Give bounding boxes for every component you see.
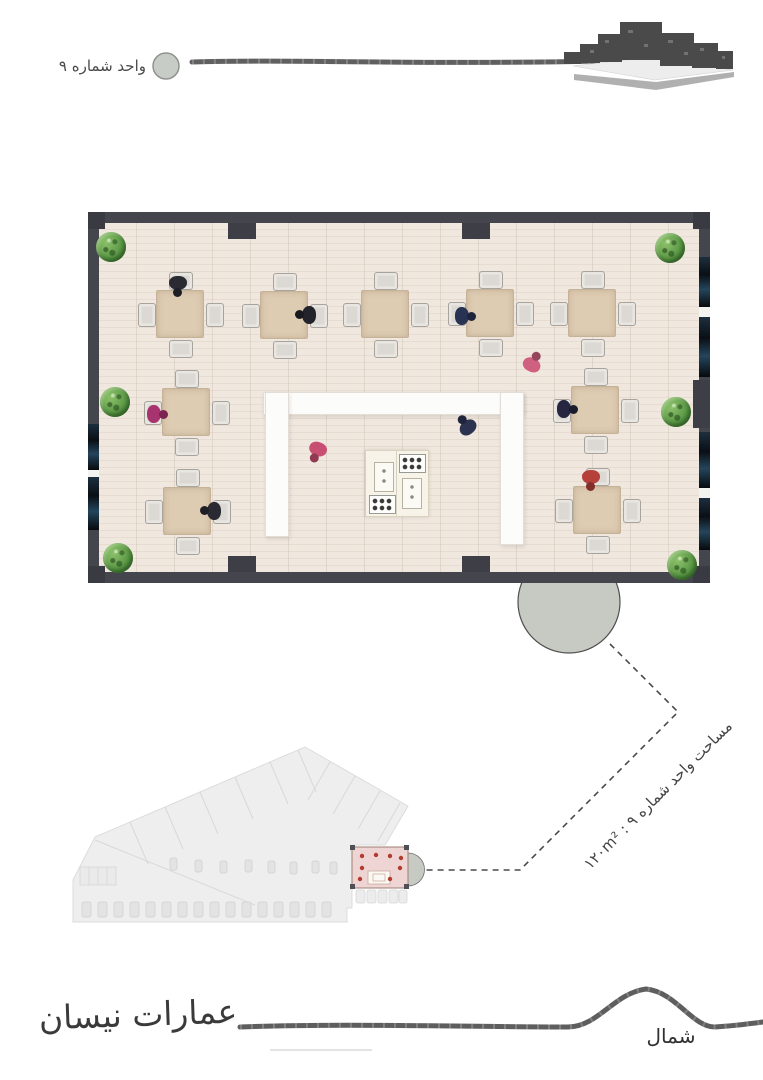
plant (661, 397, 691, 427)
unit-title: واحد شماره ۹ (38, 57, 146, 75)
appliance-door (374, 462, 394, 492)
chair-east (206, 303, 224, 327)
unit-circle-marker (153, 53, 179, 79)
unit-floor-plan (88, 212, 710, 583)
person (581, 468, 601, 492)
dining-table (162, 388, 210, 436)
site-plan (73, 747, 425, 922)
chair-south (479, 339, 503, 357)
chair-west (145, 500, 163, 524)
chair-north (581, 271, 605, 289)
stove-unit (399, 454, 426, 473)
person (145, 404, 169, 424)
header-sketch-line (192, 61, 598, 62)
wall-corner (88, 566, 105, 583)
chair-north (176, 469, 200, 487)
building-illustration (564, 22, 734, 90)
chair-east (516, 302, 534, 326)
chair-south (586, 536, 610, 554)
chair-west (138, 303, 156, 327)
plant (103, 543, 133, 573)
island-divider (396, 451, 397, 516)
chair-south (273, 341, 297, 359)
appliance-door (402, 478, 422, 509)
person-head (159, 410, 168, 419)
chair-north (584, 368, 608, 386)
chair-south (584, 436, 608, 454)
dining-table (361, 290, 409, 338)
chair-south (581, 339, 605, 357)
north-mountain-symbol (240, 989, 763, 1027)
site-plan-highlight-unit (350, 845, 425, 889)
chair-west (343, 303, 361, 327)
chair-south (175, 438, 199, 456)
wall-pier (693, 380, 710, 428)
window-glass (88, 477, 99, 530)
north-label: شمال (641, 1024, 701, 1048)
person (199, 501, 223, 521)
window-mullion (699, 307, 710, 317)
chair-south (169, 340, 193, 358)
window-glass (699, 317, 710, 377)
chair-west (242, 304, 260, 328)
person (168, 274, 188, 298)
person (453, 306, 477, 326)
window-glass (699, 498, 710, 550)
kitchen-island (365, 450, 429, 517)
person-head (467, 312, 476, 321)
person-head (200, 506, 209, 515)
leader-line (426, 644, 678, 870)
plant (655, 233, 685, 263)
service-counter-right (500, 392, 524, 545)
person-head (586, 482, 595, 491)
chair-north (273, 273, 297, 291)
dining-table (568, 289, 616, 337)
person-head (295, 310, 304, 319)
chair-south (374, 340, 398, 358)
chair-east (623, 499, 641, 523)
wall-pier (462, 556, 490, 572)
wall-pier (228, 223, 256, 239)
chair-east (212, 401, 230, 425)
plant (100, 387, 130, 417)
wall-corner (88, 212, 105, 229)
chair-south (176, 537, 200, 555)
chair-north (175, 370, 199, 388)
chair-east (618, 302, 636, 326)
stove-unit (369, 495, 396, 514)
window-glass (699, 432, 710, 488)
person-body (207, 502, 221, 520)
wall-pier (228, 556, 256, 572)
window-glass (88, 424, 99, 470)
signature-calligraphy: عمارات نیسان (27, 991, 248, 1038)
chair-west (555, 499, 573, 523)
service-counter-top (263, 392, 524, 415)
plant (667, 550, 697, 580)
dining-table (573, 486, 621, 534)
chair-west (550, 302, 568, 326)
chair-east (621, 399, 639, 423)
person-head (173, 288, 182, 297)
chair-east (411, 303, 429, 327)
wall-pier (462, 223, 490, 239)
window-mullion (699, 488, 710, 498)
chair-north (479, 271, 503, 289)
window-mullion (88, 470, 99, 477)
person-body (302, 306, 316, 324)
service-counter-left (265, 392, 289, 537)
person-head (569, 405, 578, 414)
chair-north (374, 272, 398, 290)
person (294, 305, 318, 325)
plant (96, 232, 126, 262)
window-glass (699, 257, 710, 307)
person (555, 399, 579, 419)
wall-corner (693, 212, 710, 229)
presentation-sheet: واحد شماره ۹ مساحت واحد شماره ۹ : ۱۲۰m² … (0, 0, 763, 1080)
